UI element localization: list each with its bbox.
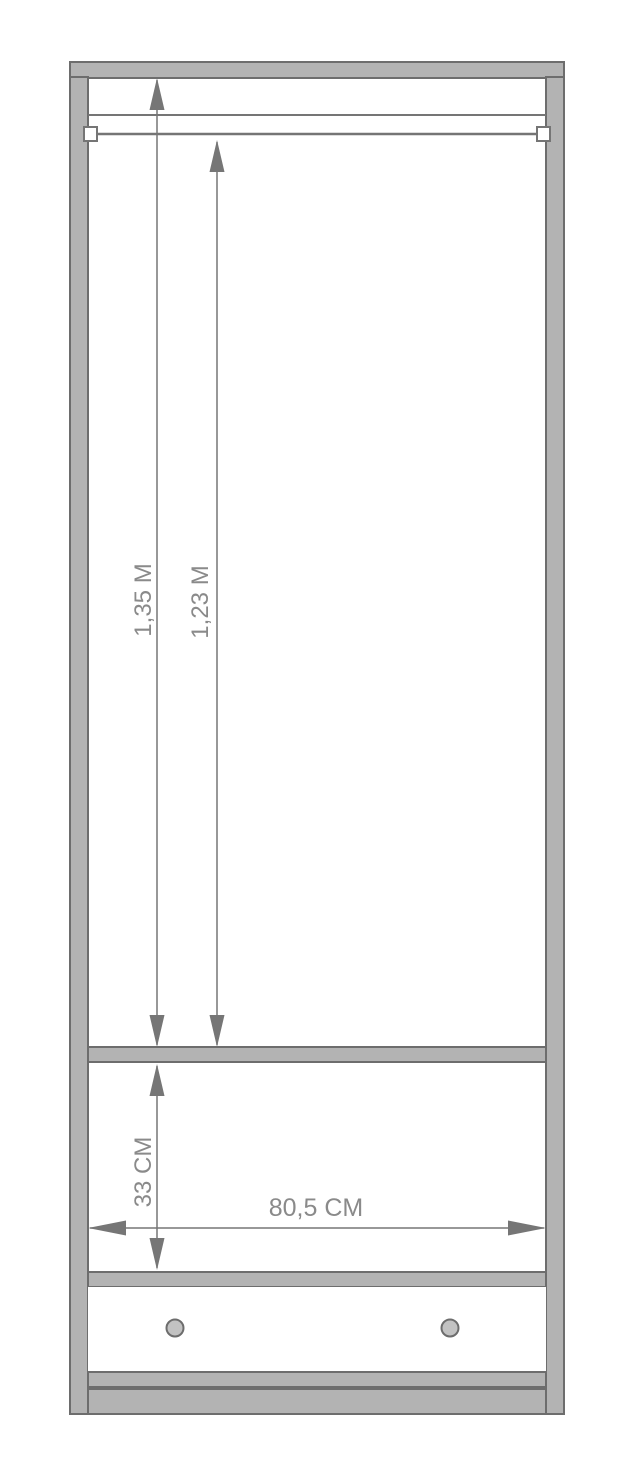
label-inner-height: 1,35 M — [130, 563, 157, 636]
arrowhead-right-icon — [508, 1221, 546, 1236]
dimension-lines — [88, 78, 546, 1270]
dim-inner-height — [150, 78, 165, 1047]
arrowhead-up-icon — [150, 1064, 165, 1096]
hanging-rail — [84, 127, 550, 141]
arrowhead-down-icon — [150, 1015, 165, 1047]
drawer-knob-right — [442, 1320, 459, 1337]
arrowhead-down-icon — [210, 1015, 225, 1047]
plinth-panel — [88, 1389, 546, 1414]
drawer-face — [88, 1287, 546, 1372]
label-inner-width: 80,5 CM — [269, 1194, 363, 1222]
arrowhead-up-icon — [210, 140, 225, 172]
diagram-svg: 1,35 M 1,23 M 33 CM 80,5 CM — [0, 0, 624, 1470]
drawer-front — [88, 1287, 546, 1372]
top-panel — [70, 62, 564, 78]
lower-shelf — [88, 1272, 546, 1287]
label-drawer-section-height: 33 CM — [130, 1137, 157, 1208]
arrowhead-up-icon — [150, 78, 165, 110]
drawer-knob-left — [167, 1320, 184, 1337]
rail-bracket-left — [84, 127, 97, 141]
label-rail-height: 1,23 M — [187, 565, 214, 638]
left-side-panel — [70, 77, 88, 1414]
bottom-rail — [88, 1372, 546, 1387]
middle-shelf — [88, 1047, 546, 1062]
wardrobe-dimension-diagram: 1,35 M 1,23 M 33 CM 80,5 CM — [0, 0, 624, 1470]
arrowhead-left-icon — [88, 1221, 126, 1236]
arrowhead-down-icon — [150, 1238, 165, 1270]
right-side-panel — [546, 77, 564, 1414]
rail-bracket-right — [537, 127, 550, 141]
